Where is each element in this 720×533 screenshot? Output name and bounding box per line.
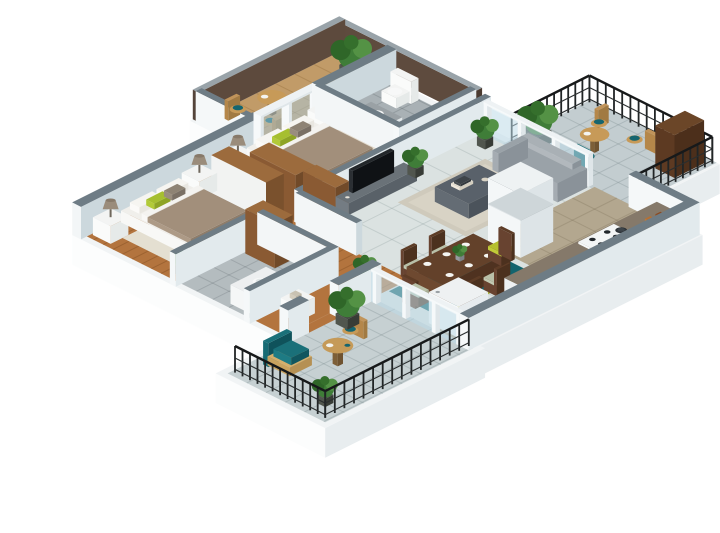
- tv-console-deco: [345, 196, 349, 198]
- hob-burner3: [604, 230, 611, 233]
- coffee-table-deco: [481, 178, 488, 182]
- floor-plan-canvas: [0, 0, 720, 533]
- plate4: [446, 273, 454, 277]
- toilet-seat: [387, 88, 402, 95]
- plate1: [423, 262, 431, 266]
- hob-pan-inner: [618, 228, 625, 232]
- right-balcony-table-deco: [584, 132, 591, 136]
- top-balcony-chair1-cushion: [233, 105, 243, 110]
- floor-plan-3d-render: [0, 0, 720, 533]
- top-balcony-table-deco: [261, 95, 268, 99]
- right-balcony-chair1-cushion: [594, 119, 604, 124]
- right-balcony-chair2-cushion: [629, 136, 639, 141]
- bottom-balcony-table-deco1: [326, 343, 333, 347]
- hob-burner1: [589, 238, 596, 241]
- plate5: [465, 263, 473, 267]
- washing-machine-dial: [436, 291, 440, 293]
- plate2: [443, 252, 451, 256]
- bottom-balcony-table-deco2: [344, 344, 350, 347]
